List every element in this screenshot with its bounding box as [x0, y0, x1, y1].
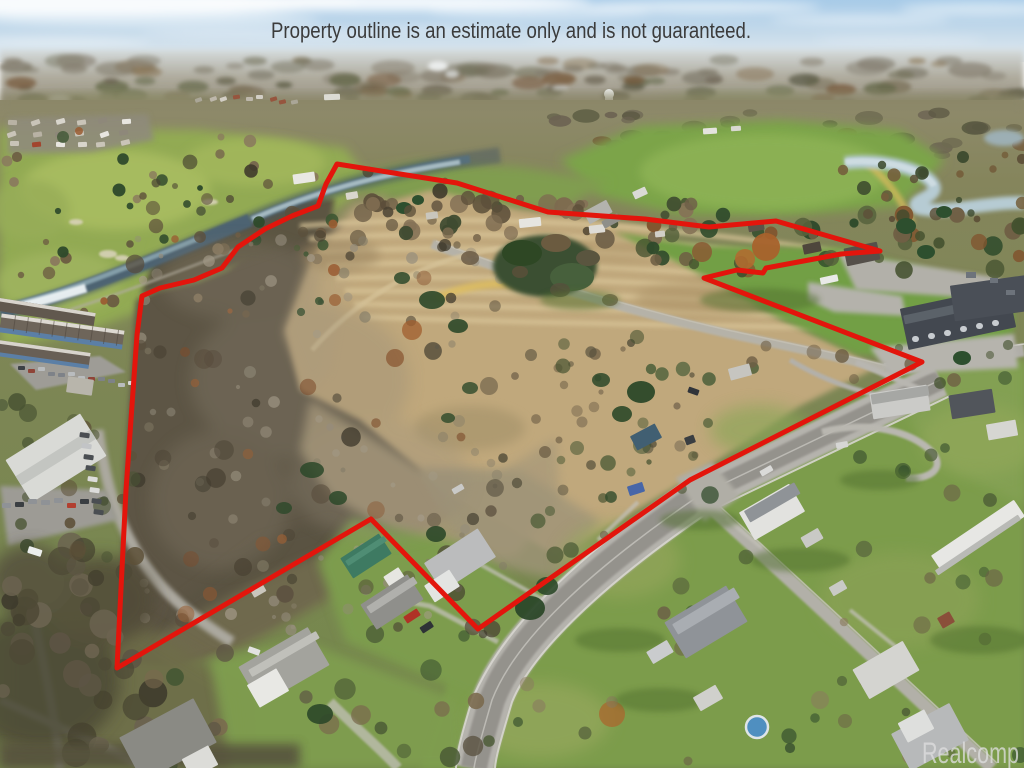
svg-text:Property outline is an estimat: Property outline is an estimate only and… [271, 18, 751, 43]
svg-text:Realcomp: Realcomp [922, 737, 1019, 768]
